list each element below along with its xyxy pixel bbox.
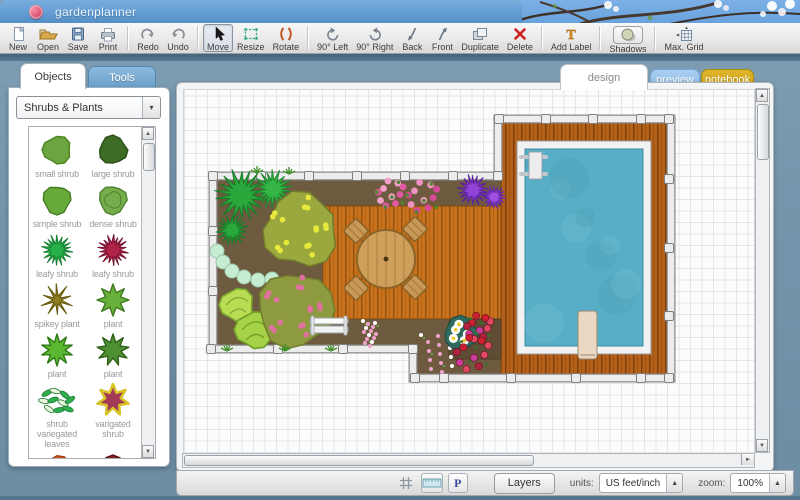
move-icon [207, 26, 229, 42]
category-select-value: Shrubs & Plants [24, 102, 142, 114]
delete-label: Delete [507, 42, 533, 52]
units-value: US feet/inch [600, 478, 666, 489]
maxgrid-label: Max. Grid [664, 42, 703, 52]
plant-icon [35, 233, 79, 267]
layers-button[interactable]: Layers [494, 473, 555, 494]
toolbar-shadow-band [0, 54, 800, 61]
rot90r-icon [364, 26, 386, 42]
plant-label: spikey plant [34, 319, 79, 329]
plant-icon [91, 383, 135, 417]
plant-label: large shrub [92, 169, 135, 179]
toolbar-duplicate-button[interactable]: Duplicate [457, 24, 503, 52]
toolbar-resize-button[interactable]: Resize [233, 24, 269, 52]
toolbar-rot90l-button[interactable]: 90° Left [313, 24, 352, 52]
units-dropdown[interactable]: US feet/inch ▲ [599, 473, 683, 493]
rot90r-label: 90° Right [356, 42, 393, 52]
canvas-vscrollbar[interactable]: ▲ ▼ [755, 88, 770, 453]
swimming-pool[interactable] [517, 141, 651, 359]
plant-item-simple-shrub[interactable]: simple shrub [29, 179, 85, 229]
plant-icon [35, 453, 79, 459]
toolbar-undo-button[interactable]: Undo [163, 24, 193, 52]
scroll-up-icon[interactable]: ▲ [142, 127, 154, 140]
toolbar-new-button[interactable]: New [3, 24, 33, 52]
blossom-branches-image [520, 0, 800, 24]
plant-label: simple shrub [33, 219, 82, 229]
new-label: New [9, 42, 27, 52]
new-icon [7, 26, 29, 42]
plant-list: small shrublarge shrubsimple shrubdense … [28, 126, 156, 459]
shadows-label: Shadows [609, 44, 646, 54]
plant-label: leafy shrub [36, 269, 78, 279]
scroll-down-icon[interactable]: ▼ [756, 439, 768, 452]
bottom-bar: P Layers units: US feet/inch ▲ zoom: 100… [176, 470, 794, 496]
toggle-ruler-button[interactable] [421, 473, 443, 493]
resize-icon [240, 26, 262, 42]
diving-board[interactable] [578, 311, 597, 359]
toolbar-move-button[interactable]: Move [203, 24, 233, 52]
plant-label: dense shrub [89, 219, 136, 229]
app-logo-icon [29, 5, 43, 19]
plant-scroll-thumb[interactable] [143, 143, 155, 171]
plant-item[interactable] [29, 449, 85, 459]
toolbar-rot90r-button[interactable]: 90° Right [352, 24, 397, 52]
plant-icon [91, 133, 135, 167]
redo-label: Redo [137, 42, 159, 52]
toolbar-separator [197, 26, 199, 50]
desktop-wallpaper [520, 0, 800, 24]
plant-icon [91, 283, 135, 317]
front-icon [431, 26, 453, 42]
maxgrid-icon [673, 26, 695, 42]
chevron-down-icon[interactable]: ▾ [142, 97, 160, 118]
plant-label: varigated shrub [85, 419, 141, 439]
scroll-down-icon[interactable]: ▼ [142, 445, 154, 458]
plant-label: plant [48, 369, 67, 379]
front-label: Front [432, 42, 453, 52]
zoom-label: zoom: [698, 478, 725, 489]
back-icon [401, 26, 423, 42]
ruler-icon [422, 477, 442, 489]
titlebar[interactable]: gardenplanner [0, 0, 522, 24]
move-label: Move [207, 42, 229, 52]
plant-icon [91, 333, 135, 367]
plant-item-leafy-shrub[interactable]: leafy shrub [29, 229, 85, 279]
toolbar-addlabel-button[interactable]: TAdd Label [547, 24, 596, 52]
toolbar-back-button[interactable]: Back [397, 24, 427, 52]
toolbar-delete-button[interactable]: Delete [503, 24, 537, 52]
screen: gardenplanner NewOpenSavePrintRedoUndoMo… [0, 0, 800, 500]
plant-label: shrub variegated leaves [29, 419, 85, 449]
plant-icon [35, 383, 79, 417]
garden-object-bench[interactable] [310, 316, 348, 335]
plant-icon [91, 183, 135, 217]
toolbar-open-button[interactable]: Open [33, 24, 63, 52]
open-icon [37, 26, 59, 42]
garden-design [177, 83, 757, 457]
plant-label: plant [104, 319, 123, 329]
plant-item-large-shrub[interactable]: large shrub [85, 129, 141, 179]
plant-label: small shrub [35, 169, 79, 179]
spinner-up-icon[interactable]: ▲ [666, 474, 682, 492]
window-title: gardenplanner [55, 5, 136, 19]
spinner-up-icon[interactable]: ▲ [769, 474, 785, 492]
plant-item-dense-shrub[interactable]: dense shrub [85, 179, 141, 229]
plant-item[interactable] [85, 449, 141, 459]
plant-item-shrub-variegated-leaves[interactable]: shrub variegated leaves [29, 379, 85, 449]
toolbar-front-button[interactable]: Front [427, 24, 457, 52]
toolbar-shadows-button[interactable]: Shadows [605, 24, 650, 52]
plant-icon [35, 183, 79, 217]
undo-label: Undo [167, 42, 189, 52]
back-label: Back [402, 42, 422, 52]
toolbar-separator [127, 26, 129, 50]
redo-icon [137, 26, 159, 42]
rotate-icon [275, 26, 297, 42]
print-icon [97, 26, 119, 42]
toolbar-maxgrid-button[interactable]: Max. Grid [660, 24, 707, 52]
svg-text:T: T [566, 28, 576, 42]
plant-list-scrollbar[interactable]: ▲ ▼ [141, 127, 155, 458]
delete-icon [509, 26, 531, 42]
duplicate-icon [469, 26, 491, 42]
rotate-label: Rotate [273, 42, 300, 52]
toolbar-rotate-button[interactable]: Rotate [269, 24, 304, 52]
resize-label: Resize [237, 42, 265, 52]
canvas-panel: ▲ ▼ ► [176, 82, 774, 472]
plant-icon [91, 453, 135, 459]
plant-item-varigated-shrub[interactable]: varigated shrub [85, 379, 141, 449]
plant-icon [35, 333, 79, 367]
sidebar-tab-objects[interactable]: Objects [20, 63, 86, 89]
addlabel-label: Add Label [551, 42, 592, 52]
plant-item-plant[interactable]: plant [85, 279, 141, 329]
toolbar: NewOpenSavePrintRedoUndoMoveResizeRotate… [0, 23, 800, 54]
zoom-value: 100% [731, 478, 769, 489]
shadows-icon [613, 26, 643, 44]
toolbar-separator [307, 26, 309, 50]
toggle-plant-labels-button[interactable]: P [448, 473, 468, 493]
duplicate-label: Duplicate [461, 42, 499, 52]
plant-icon [35, 133, 79, 167]
rot90l-label: 90° Left [317, 42, 348, 52]
toolbar-print-button[interactable]: Print [93, 24, 123, 52]
plant-label: leafy shrub [92, 269, 134, 279]
undo-icon [167, 26, 189, 42]
toolbar-separator [599, 26, 601, 50]
plant-icon [35, 283, 79, 317]
sidebar-panel: Shrubs & Plants ▾ small shrublarge shrub… [8, 87, 170, 467]
save-icon [67, 26, 89, 42]
toolbar-redo-button[interactable]: Redo [133, 24, 163, 52]
canvas-tab-design[interactable]: design [560, 64, 648, 90]
scroll-up-icon[interactable]: ▲ [756, 89, 768, 102]
plant-item-small-shrub[interactable]: small shrub [29, 129, 85, 179]
zoom-dropdown[interactable]: 100% ▲ [730, 473, 786, 493]
plant-item-plant[interactable]: plant [85, 329, 141, 379]
grid-icon [399, 476, 413, 490]
save-label: Save [68, 42, 89, 52]
plant-item-spikey-plant[interactable]: spikey plant [29, 279, 85, 329]
plant-label: plant [104, 369, 123, 379]
plant-item-leafy-shrub[interactable]: leafy shrub [85, 229, 141, 279]
open-label: Open [37, 42, 59, 52]
plant-item-plant[interactable]: plant [29, 329, 85, 379]
toggle-grid-button[interactable] [396, 473, 416, 493]
canvas-vscroll-thumb[interactable] [757, 104, 769, 160]
toolbar-separator [654, 26, 656, 50]
category-select[interactable]: Shrubs & Plants ▾ [16, 96, 161, 119]
toolbar-save-button[interactable]: Save [63, 24, 93, 52]
plant-icon [91, 233, 135, 267]
desktop-edge [0, 496, 800, 500]
print-label: Print [99, 42, 118, 52]
addlabel-icon: T [560, 26, 582, 42]
toolbar-separator [541, 26, 543, 50]
units-label: units: [570, 478, 594, 489]
rot90l-icon [322, 26, 344, 42]
